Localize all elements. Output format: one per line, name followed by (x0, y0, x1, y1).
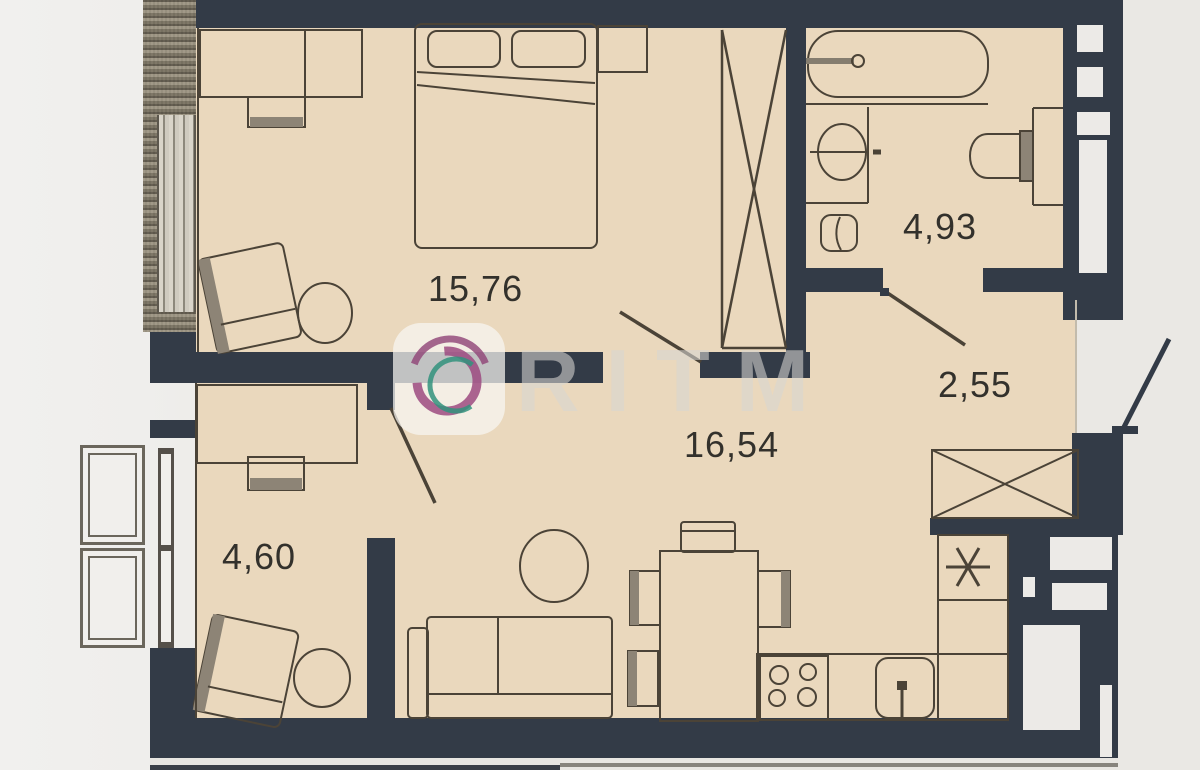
sofa-armrest (408, 628, 428, 718)
pouf (298, 283, 352, 343)
entry-door-leaf (1123, 339, 1169, 429)
kitchen-column-counter (938, 535, 1008, 720)
watermark-brand-text: RITM (516, 330, 835, 432)
stove (760, 656, 828, 720)
sofa (427, 617, 612, 718)
kitchen-fixtures (757, 535, 1008, 720)
area-label-cabinet-room: 4,60 (222, 536, 296, 578)
toilet-tank (1020, 131, 1033, 181)
dining-table (660, 551, 758, 721)
glazing-lines (196, 28, 198, 718)
blanket-fold (417, 72, 595, 104)
kitchen-bottom-counter (757, 654, 1008, 720)
hallway-cabinet-crossed-box (932, 450, 1078, 518)
living-furniture (408, 522, 790, 721)
round-table (520, 530, 588, 602)
dining-chair-top (681, 522, 735, 552)
pillow (428, 31, 500, 67)
burner (769, 690, 785, 706)
pillow (512, 31, 585, 67)
desk (200, 30, 362, 97)
armchair-shade (198, 257, 230, 353)
desk-chair-shade (250, 117, 303, 127)
pouf (294, 649, 350, 707)
toilet-bowl (970, 134, 1020, 178)
area-label-bedroom: 15,76 (428, 268, 523, 310)
burner (798, 688, 816, 706)
ritm-swirl-logo-icon (393, 323, 505, 435)
area-label-bathroom: 4,93 (903, 206, 977, 248)
burner (800, 664, 816, 680)
burner (770, 666, 788, 684)
floorplan-photo: 15,76 4,93 2,55 16,54 4,60 RITM (0, 0, 1200, 770)
wardrobe-crossed-box (722, 30, 786, 348)
desk (197, 385, 357, 463)
nightstand (598, 26, 647, 72)
bathroom-door-leaf (886, 292, 965, 345)
double-bed (415, 24, 597, 248)
fridge-asterisk (946, 548, 990, 586)
area-label-hallway: 2,55 (938, 364, 1012, 406)
